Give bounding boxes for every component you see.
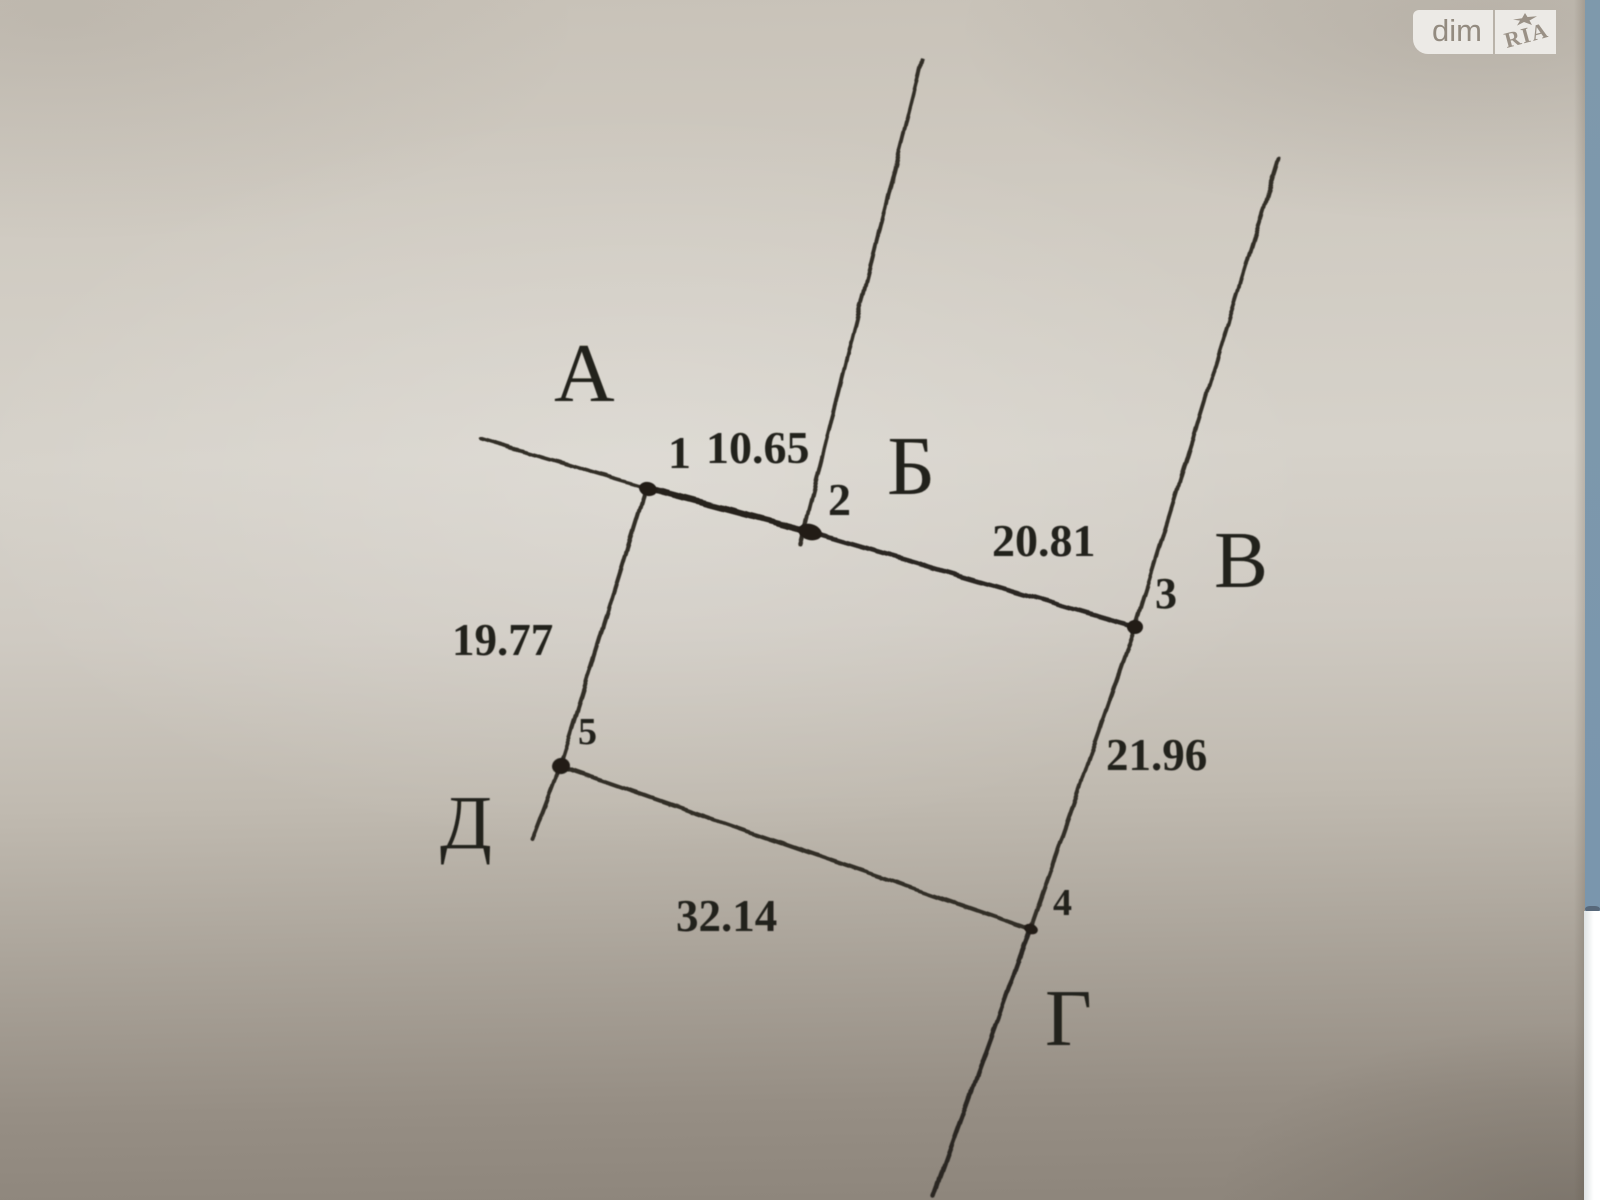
svg-text:10.65: 10.65 bbox=[706, 422, 810, 473]
svg-text:32.14: 32.14 bbox=[676, 891, 777, 941]
svg-text:5: 5 bbox=[578, 711, 597, 753]
svg-text:2: 2 bbox=[828, 474, 851, 525]
svg-text:21.96: 21.96 bbox=[1106, 730, 1207, 780]
svg-text:Д: Д bbox=[440, 781, 492, 865]
svg-text:19.77: 19.77 bbox=[452, 615, 553, 665]
svg-text:Г: Г bbox=[1045, 973, 1092, 1063]
svg-text:20.81: 20.81 bbox=[992, 515, 1096, 566]
svg-text:В: В bbox=[1214, 515, 1268, 605]
svg-text:3: 3 bbox=[1155, 569, 1177, 618]
svg-text:А: А bbox=[554, 327, 615, 420]
svg-text:1: 1 bbox=[668, 427, 691, 478]
svg-text:4: 4 bbox=[1053, 882, 1072, 924]
svg-text:Б: Б bbox=[887, 420, 935, 513]
